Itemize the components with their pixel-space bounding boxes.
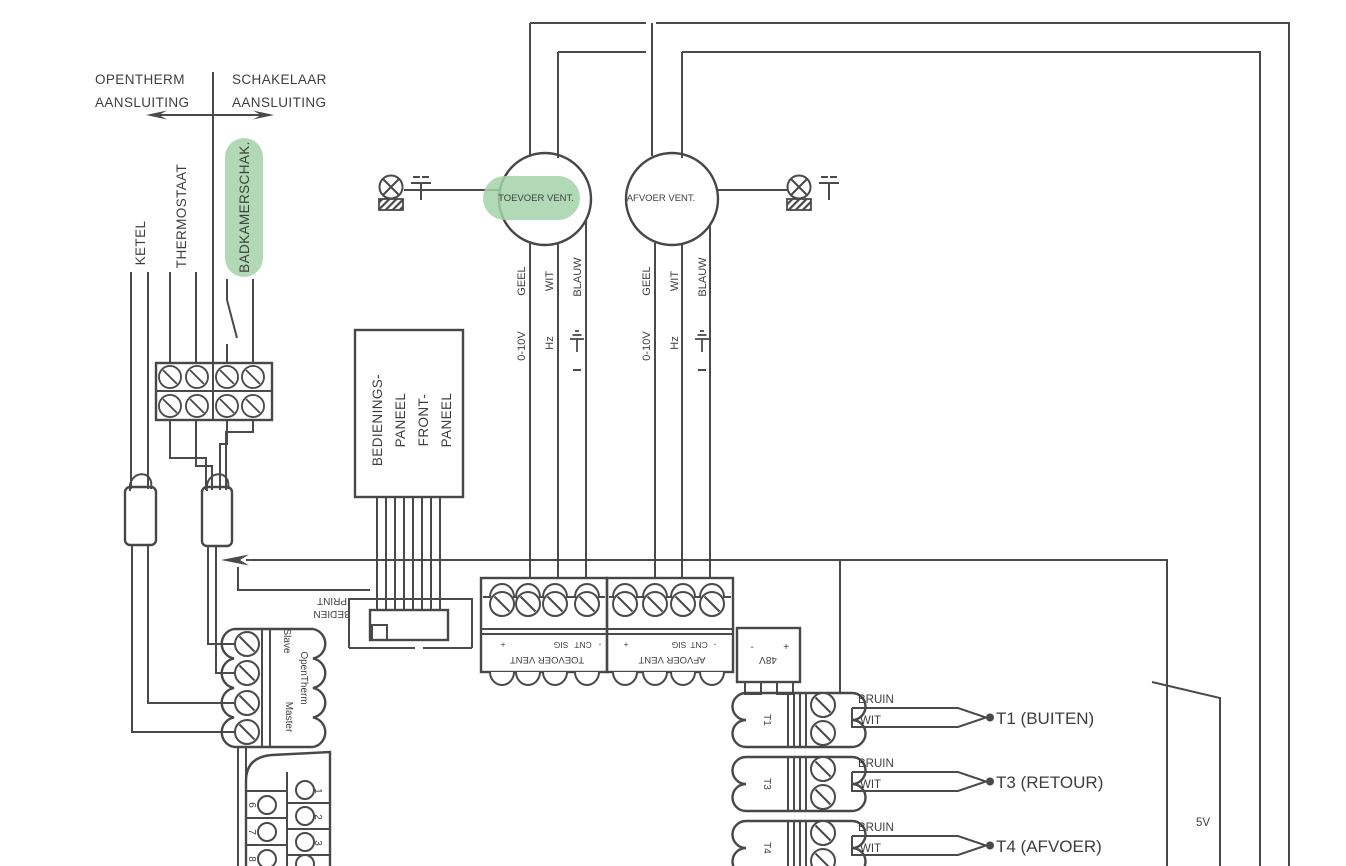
opentherm-master-label: Master [283, 702, 294, 733]
connection-type-header: OPENTHERM AANSLUITING SCHAKELAAR AANSLUI… [95, 72, 327, 420]
sensor-section-t1: T1 [733, 693, 866, 747]
cable-sleeve-icon [125, 474, 156, 545]
top-buses [530, 23, 1289, 866]
block-name-label: AFVOER VENT [638, 654, 705, 665]
sensor-t3: BRUIN WIT T3 (RETOUR) [852, 758, 1103, 792]
pin-icon [296, 833, 314, 851]
screw-icon [643, 592, 667, 616]
sensor-section-t4: T4 [733, 821, 866, 866]
opentherm-terminal-block: Slave OpenTherm Master [222, 628, 326, 747]
control-board: BEDIEN PRINT [313, 595, 472, 648]
screw-icon [242, 395, 264, 417]
thermostaat-label: THERMOSTAAT [174, 164, 189, 268]
screw-icon [235, 661, 259, 685]
supply-fan: TOEVOER VENT. [379, 153, 591, 245]
screw-icon [811, 849, 835, 866]
psu-voltage-label: 48V [759, 654, 777, 665]
opentherm-slave-label: Slave [281, 628, 292, 653]
wire-color-label: GEEL [641, 266, 653, 295]
power-connector-icon [787, 176, 811, 211]
pin-number: 2 [312, 814, 323, 820]
wire-bruin-label: BRUIN [858, 758, 894, 770]
schakelaar-connection-label: SCHAKELAAR [232, 72, 327, 87]
screw-icon [186, 366, 208, 388]
schakelaar-connection-label2: AANSLUITING [232, 95, 326, 110]
five-volt-label: 5V [1196, 817, 1210, 829]
ground-icon [411, 177, 431, 200]
sensor-t4: BRUIN WIT T4 (AFVOER) [852, 822, 1102, 856]
screw-icon [613, 592, 637, 616]
sensor-name-label: T3 (RETOUR) [996, 773, 1103, 792]
pin-icon [258, 850, 276, 866]
screw-icon [543, 592, 567, 616]
power-connector-icon [379, 176, 403, 211]
pin-number: 6 [246, 802, 257, 808]
wire-signal-label: Hz [544, 336, 556, 349]
ketel-label: KETEL [133, 221, 148, 266]
screw-icon [235, 632, 259, 656]
screw-icon [216, 366, 238, 388]
psu-plus-label: + [783, 642, 789, 653]
screw-icon [159, 366, 181, 388]
cable-sleeve-icon [202, 474, 232, 546]
exhaust-fan-label: AFVOER VENT. [627, 193, 696, 204]
sensor-name-label: T1 (BUITEN) [996, 709, 1094, 728]
panel-label-2: PANEEL [393, 393, 408, 448]
wire-wit-label: WIT [860, 779, 881, 791]
terminal-id-label: T3 [761, 778, 772, 790]
terminal-id-label: T1 [761, 714, 772, 726]
screw-icon [216, 395, 238, 417]
panel-label-4: PANEEL [439, 393, 454, 448]
right-arrow-icon [213, 111, 274, 120]
pin-icon [296, 855, 314, 866]
left-arrow-icon [146, 111, 213, 120]
temperature-sensors: BRUIN WIT T1 (BUITEN) BRUIN WIT T3 (RETO… [852, 694, 1103, 856]
badkamerschak-label: BADKAMERSCHAK. [237, 141, 252, 273]
screw-icon [811, 757, 835, 781]
screw-icon [490, 592, 514, 616]
panel-label-3: FRONT- [416, 394, 431, 447]
screw-icon [235, 691, 259, 715]
dsub-connector: 6 7 8 1 2 3 [238, 747, 330, 866]
sensor-t1: BRUIN WIT T1 (BUITEN) [852, 694, 1094, 728]
wire-color-label: WIT [669, 271, 681, 291]
ground-icon [570, 331, 584, 352]
sensor-section-t3: T3 [733, 757, 866, 811]
psu-minus-label: - [750, 642, 753, 653]
psu-box: - + 48V [737, 628, 800, 694]
ground-icon [695, 331, 709, 352]
bedien-print-label: BEDIEN PRINT [313, 595, 350, 619]
screw-icon [811, 721, 835, 745]
probe-tip-icon [986, 778, 994, 786]
screw-icon [235, 720, 259, 744]
wire-bruin-label: BRUIN [858, 822, 894, 834]
ribbon-cable [377, 497, 440, 610]
screw-icon [242, 366, 264, 388]
wire-signal-label: 0-10V [641, 331, 653, 361]
source-labels: KETEL THERMOSTAAT BADKAMERSCHAK. [133, 138, 263, 277]
terminal-label: SIG [554, 640, 569, 650]
fan-terminal-blocks: + SIG CNT - TOEVOER VENT + SIG CNT - AFV… [481, 578, 733, 685]
sensor-terminal-blocks: T1 T3 T4 [733, 693, 866, 866]
pin-number: 8 [246, 856, 257, 862]
front-panel-box: BEDIENINGS- PANEEL FRONT- PANEEL [355, 330, 463, 610]
wire-color-label: BLAUW [697, 257, 709, 297]
wire-bruin-label: BRUIN [858, 694, 894, 706]
screw-icon [811, 693, 835, 717]
sensor-name-label: T4 (AFVOER) [996, 837, 1102, 856]
screw-icon [159, 395, 181, 417]
pin-number: 1 [312, 788, 323, 794]
terminal-label: CNT [574, 640, 591, 650]
screw-icon [575, 592, 599, 616]
opentherm-label: OpenTherm [298, 651, 309, 704]
wire-wit-label: WIT [860, 843, 881, 855]
switch-icon [227, 279, 237, 363]
panel-label-1: BEDIENINGS- [370, 374, 385, 466]
terminal-label: - [713, 640, 716, 650]
terminal-label: - [598, 640, 601, 650]
wire-color-label: WIT [544, 271, 556, 291]
wire-wit-label: WIT [860, 715, 881, 727]
screw-icon [700, 592, 724, 616]
screw-icon [811, 785, 835, 809]
wiring-diagram-page: OPENTHERM AANSLUITING SCHAKELAAR AANSLUI… [0, 0, 1346, 866]
wire-signal-label: Hz [669, 336, 681, 349]
pin-icon [258, 796, 276, 814]
fan-wires: GEEL WIT BLAUW 0-10V Hz GEEL WIT BLAUW 0… [516, 221, 710, 578]
wire-signal-label: 0-10V [516, 331, 528, 361]
pin-icon [296, 807, 314, 825]
left-terminal-block [156, 363, 272, 420]
wire-color-label: BLAUW [572, 257, 584, 297]
pin-icon [258, 823, 276, 841]
terminal-id-label: T4 [761, 842, 772, 854]
terminal-label: SIG [672, 640, 687, 650]
supply-fan-label: TOEVOER VENT. [498, 193, 574, 204]
terminal-label: CNT [690, 640, 707, 650]
screw-icon [811, 821, 835, 845]
five-volt-wire: 5V [1152, 682, 1220, 866]
opentherm-connection-label: OPENTHERM [95, 72, 185, 87]
exhaust-fan: AFVOER VENT. [626, 153, 839, 245]
svg-text:PRINT: PRINT [317, 595, 347, 606]
opentherm-connection-label2: AANSLUITING [95, 95, 189, 110]
terminal-label: + [500, 640, 505, 650]
screw-icon [671, 592, 695, 616]
probe-tip-icon [986, 714, 994, 722]
probe-tip-icon [986, 842, 994, 850]
block-name-label: TOEVOER VENT [510, 654, 584, 665]
svg-text:BEDIEN: BEDIEN [313, 608, 350, 619]
bus-arrow-icon [221, 555, 249, 566]
pin-icon [296, 781, 314, 799]
terminal-label: + [623, 640, 628, 650]
wiring-diagram: OPENTHERM AANSLUITING SCHAKELAAR AANSLUI… [0, 0, 1346, 866]
pin-number: 7 [246, 829, 257, 835]
pin-number: 3 [312, 840, 323, 846]
ground-icon [819, 177, 839, 200]
screw-icon [516, 592, 540, 616]
wire-color-label: GEEL [516, 266, 528, 295]
screw-icon [186, 395, 208, 417]
